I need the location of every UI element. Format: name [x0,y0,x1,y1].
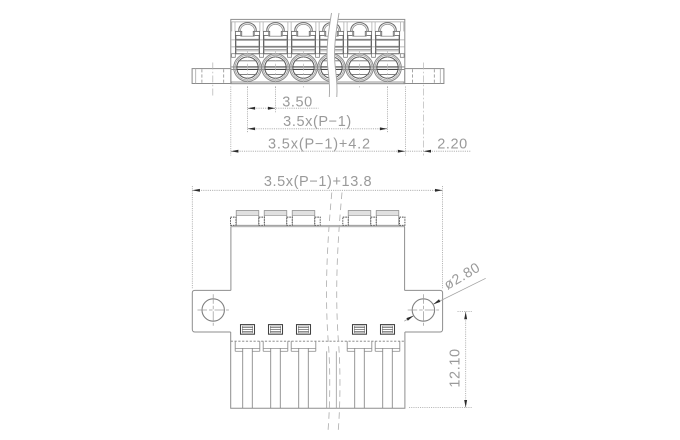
svg-text:3.5x(P−1)+4.2: 3.5x(P−1)+4.2 [268,137,371,153]
svg-text:3.5x(P−1)+13.8: 3.5x(P−1)+13.8 [264,174,372,190]
svg-text:3.50: 3.50 [282,94,313,110]
svg-text:2.20: 2.20 [437,137,468,153]
svg-text:12.10: 12.10 [448,348,464,387]
svg-text:3.5x(P−1): 3.5x(P−1) [283,114,352,130]
